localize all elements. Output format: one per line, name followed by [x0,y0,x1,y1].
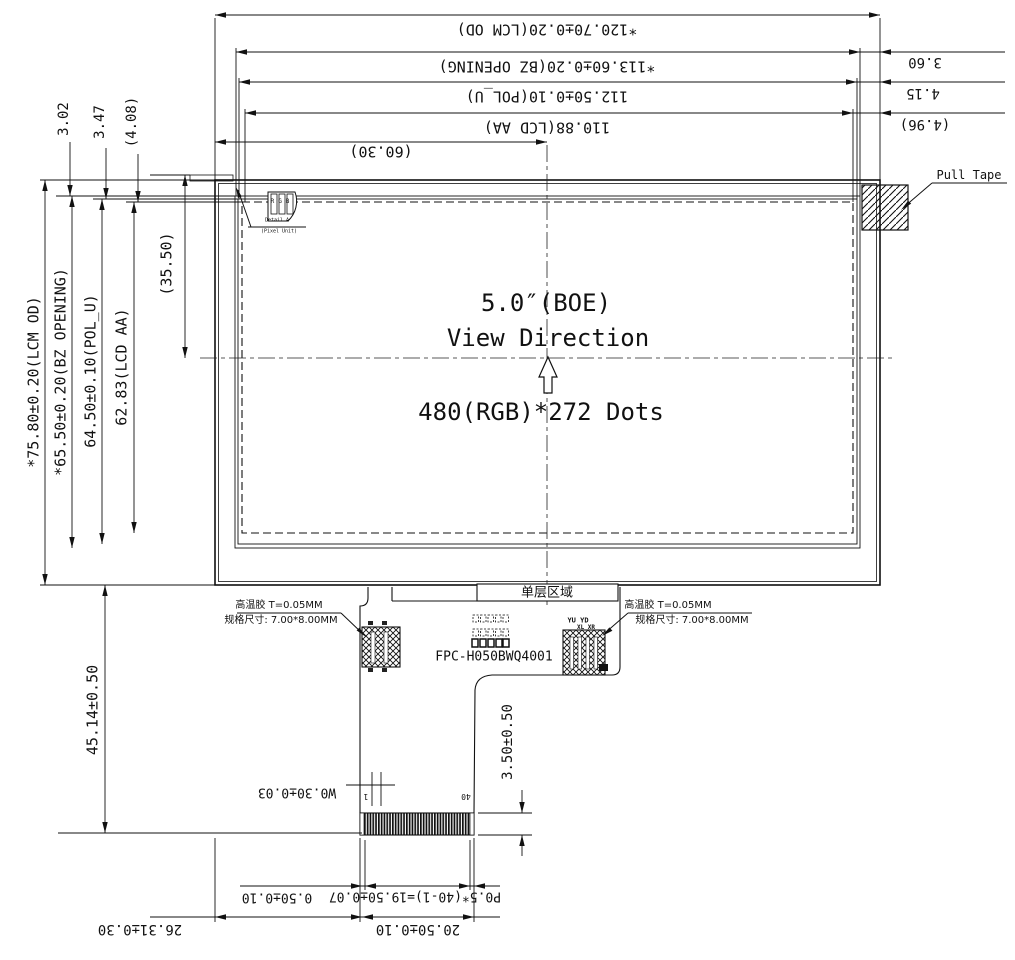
dim-left-half: (35.50) [160,232,175,295]
glue-pad-right [563,630,608,675]
dim-left-lcm-od: *75.80±0.20(LCM OD) [27,296,42,468]
dim-edge-pol: 4.15 [906,86,940,100]
dim-top-lcm-od: *120.70±0.20(LCM OD) [457,22,638,37]
glue-pad-left [362,621,400,672]
dim-finger-pitch: P0.5*(40-1)=19.50±0.07 [329,890,501,903]
fpc-components [472,615,509,647]
dim-edge-bz: 3.60 [908,55,942,69]
pull-tape-label: Pull Tape [936,169,1001,181]
glue-left-line1: 高温胶 T=0.05MM [235,601,322,611]
panel-title: 5.0″(BOE) [481,291,611,315]
dim-trace-width: W0.30±0.03 [258,786,336,799]
single-layer-label: 单层区域 [521,587,573,600]
dim-tail-offset: 26.31±0.30 [98,922,182,936]
pixel-detail-caption1: Detail A [265,219,289,224]
top-dimensions [215,15,1005,202]
pin-1-label: 1 [364,792,369,800]
drawing-linework [0,0,1015,960]
dim-left-bz: *65.50±0.20(BZ OPENING) [54,268,69,476]
module-outline [190,175,880,585]
resolution-label: 480(RGB)*272 Dots [418,400,664,424]
fpc-part-number: FPC-H050BWQ4001 [435,651,552,664]
dim-edge-aa: (4.96) [900,117,951,131]
dim-fpc-length: 45.14±0.50 [86,665,101,755]
dim-top-pol: 112.50±0.10(POL_U) [466,89,629,104]
dim-top-aa: 110.88(LCD AA) [484,120,610,135]
dim-stiffener: 3.50±0.50 [501,704,515,780]
view-direction-label: View Direction [447,326,649,350]
pull-tape-shape [862,183,1007,230]
dim-left-aa: 62.83(LCD AA) [115,308,130,425]
dim-left-edge-aa: (4.08) [125,97,139,148]
pixel-detail-caption2: (Pixel Unit) [261,230,297,235]
pin-40-label: 40 [461,792,471,800]
pixel-detail-rgb: RGB [271,199,294,205]
dim-connector-width: 20.50±0.10 [376,922,460,936]
glue-right-line1: 高温胶 T=0.05MM [624,601,711,611]
glue-left-line2: 规格尺寸: 7.00*8.00MM [224,616,337,626]
bottom-dimensions [58,585,532,922]
bottom-dimension-arrows [102,585,524,920]
view-direction-arrow [539,357,557,393]
dim-left-edge-pol: 3.47 [93,105,107,139]
fpc-connector [360,813,474,835]
dim-top-half: (60.30) [349,144,412,159]
touch-label-row2: XL XR [577,625,595,631]
glue-right-line2: 规格尺寸: 7.00*8.00MM [635,616,748,626]
dim-finger-margin: 0.50±0.10 [242,891,312,904]
dim-left-edge-bz: 3.02 [57,102,71,136]
dim-left-pol: 64.50±0.10(POL_U) [84,294,99,448]
dim-top-bz: *113.60±0.20(BZ OPENING) [439,59,656,74]
left-dimensions [40,142,242,585]
lcd-module-drawing: *120.70±0.20(LCM OD) *113.60±0.20(BZ OPE… [0,0,1015,960]
